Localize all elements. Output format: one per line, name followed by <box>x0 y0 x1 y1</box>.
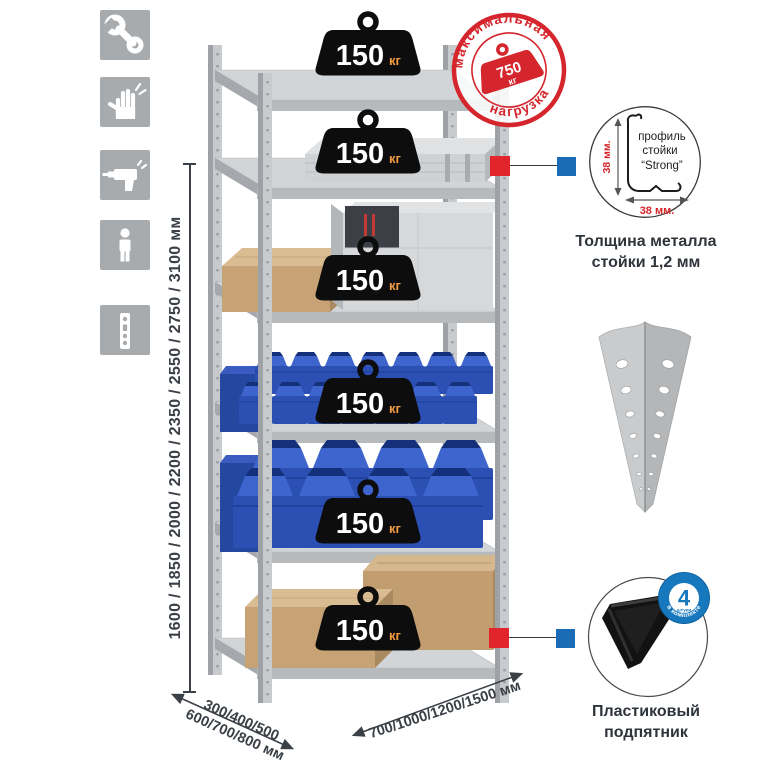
angle-post-image <box>593 312 697 524</box>
svg-text:150: 150 <box>336 615 384 647</box>
connector-red-square-bottom <box>489 628 509 648</box>
weight-1: 150 кг <box>315 14 420 76</box>
front-left-post <box>258 73 272 703</box>
svg-text:кг: кг <box>389 53 402 68</box>
connector-blue-square-top <box>557 157 576 176</box>
svg-text:150: 150 <box>336 265 384 297</box>
post-profile-detail: 38 мм. 38 мм. профиль стойки “Strong” <box>586 103 704 221</box>
badge-count: 4 <box>678 586 691 611</box>
count-badge: 4 штуки в комплекте <box>657 571 711 625</box>
svg-text:кг: кг <box>389 521 402 536</box>
svg-text:150: 150 <box>336 508 384 540</box>
svg-text:кг: кг <box>389 401 402 416</box>
svg-text:профиль: профиль <box>638 131 686 143</box>
svg-text:150: 150 <box>336 388 384 420</box>
connector-blue-square-bottom <box>556 629 575 648</box>
svg-text:150: 150 <box>336 138 384 170</box>
svg-text:кг: кг <box>389 628 402 643</box>
connector-line-top <box>510 165 558 166</box>
back-left-post <box>208 45 222 675</box>
profile-dim-vertical: 38 мм. <box>601 140 613 173</box>
svg-text:стойки: стойки <box>642 145 677 157</box>
rack-post-strip-icon <box>100 305 150 355</box>
wrench-icon <box>100 10 150 60</box>
profile-dim-horizontal: 38 мм. <box>640 205 675 217</box>
svg-text:“Strong”: “Strong” <box>641 160 683 172</box>
svg-text:150: 150 <box>336 40 384 72</box>
svg-text:кг: кг <box>389 151 402 166</box>
weight-2: 150 кг <box>315 112 420 174</box>
gloves-icon <box>100 77 150 127</box>
height-dimension-line <box>189 164 191 692</box>
shelving-rack-infographic: { "assembly_icons": { "items": [ {"name"… <box>0 0 765 765</box>
max-load-stamp: 750 кг максимальная нагрузка <box>445 6 573 134</box>
drill-icon <box>100 150 150 200</box>
connector-red-square-top <box>490 156 510 176</box>
profile-caption: Толщина металла стойки 1,2 мм <box>570 231 722 273</box>
height-dimension-label: 1600 / 1850 / 2000 / 2200 / 2350 / 2550 … <box>167 168 185 688</box>
person-icon <box>100 220 150 270</box>
svg-text:кг: кг <box>389 278 402 293</box>
connector-line-bottom <box>509 637 557 638</box>
plastic-foot-caption: Пластиковый подпятник <box>570 701 722 743</box>
